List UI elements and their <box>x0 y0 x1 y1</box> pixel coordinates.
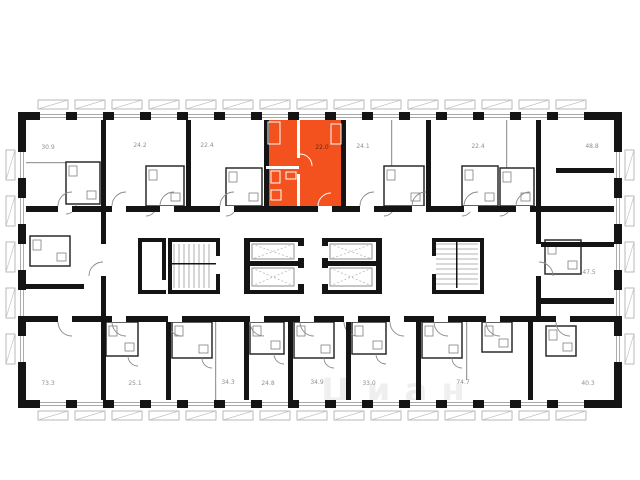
bathroom-box <box>30 236 70 266</box>
door-opening <box>300 316 314 322</box>
window-opening <box>558 400 584 408</box>
window-opening <box>336 400 362 408</box>
wall <box>298 258 304 268</box>
window-opening <box>484 400 510 408</box>
window-opening <box>225 112 251 120</box>
door-opening <box>220 206 234 212</box>
door-opening <box>112 206 126 212</box>
window-opening <box>18 198 26 224</box>
unit-area-label: 73.3 <box>41 380 55 387</box>
wall <box>101 321 106 400</box>
wall <box>322 238 382 242</box>
partition <box>26 162 66 163</box>
unit-area-label: 33.0 <box>362 380 376 387</box>
unit-area-label: 40.3 <box>581 380 595 387</box>
unit-area-label: 47.5 <box>582 269 596 276</box>
window-opening <box>18 244 26 270</box>
wall <box>541 242 614 247</box>
wall <box>216 238 220 256</box>
wall <box>536 298 614 304</box>
door-opening <box>556 316 570 322</box>
window-opening <box>114 112 140 120</box>
bathroom-box <box>384 166 424 206</box>
highlighted-unit-area-label: 22.0 <box>315 144 329 151</box>
window-opening <box>614 198 622 224</box>
window-opening <box>40 400 66 408</box>
unit-area-label: 24.8 <box>261 380 275 387</box>
wall <box>328 261 376 266</box>
door-opening <box>390 316 404 322</box>
unit-area-label: 30.9 <box>41 144 55 151</box>
window-opening <box>151 400 177 408</box>
wall <box>26 284 84 289</box>
door-opening <box>250 316 264 322</box>
wall <box>168 238 220 242</box>
window-opening <box>373 400 399 408</box>
wall <box>101 276 106 316</box>
window-opening <box>299 112 325 120</box>
stair-divider <box>456 242 458 288</box>
door-opening <box>160 206 174 212</box>
wall <box>250 261 298 266</box>
bathroom-box <box>226 168 262 206</box>
unit-area-label: 22.4 <box>200 142 214 149</box>
window-opening <box>262 112 288 120</box>
bathroom-box <box>66 162 100 204</box>
door-opening <box>516 206 530 212</box>
unit-area-label: 25.1 <box>128 380 142 387</box>
unit-area-label: 48.8 <box>585 143 599 150</box>
wall <box>244 290 304 294</box>
window-opening <box>447 400 473 408</box>
window-opening <box>114 400 140 408</box>
window-opening <box>521 400 547 408</box>
window-opening <box>262 400 288 408</box>
window-opening <box>77 112 103 120</box>
wall <box>536 276 541 316</box>
partition <box>506 120 507 168</box>
window-opening <box>18 152 26 178</box>
door-opening <box>344 316 358 322</box>
wall <box>416 321 421 400</box>
wall <box>528 321 533 400</box>
window-opening <box>225 400 251 408</box>
wall <box>341 120 346 206</box>
wall <box>432 238 484 242</box>
wall <box>536 212 541 244</box>
window-opening <box>188 400 214 408</box>
wall <box>322 238 328 246</box>
unit-area-label: 22.4 <box>471 143 485 150</box>
window-opening <box>373 112 399 120</box>
wall <box>322 290 382 294</box>
bathroom-box <box>146 166 184 206</box>
wall <box>432 290 484 294</box>
window-opening <box>614 290 622 316</box>
wall <box>298 284 304 294</box>
door-opening <box>412 206 426 212</box>
wall <box>556 168 614 173</box>
window-opening <box>40 112 66 120</box>
wall <box>244 238 304 242</box>
window-opening <box>521 112 547 120</box>
window-opening <box>188 112 214 120</box>
door-opening <box>168 316 182 322</box>
unit-area-label: 34.9 <box>310 379 324 386</box>
wall <box>168 290 220 294</box>
window-opening <box>151 112 177 120</box>
wall <box>536 120 541 206</box>
wall <box>426 120 431 206</box>
wall <box>322 258 328 268</box>
wall <box>322 284 328 294</box>
door-opening <box>360 206 374 212</box>
wall <box>298 238 304 246</box>
window-opening <box>558 112 584 120</box>
window-opening <box>614 336 622 362</box>
door-opening <box>58 206 72 212</box>
unit-area-label: 74.7 <box>456 379 470 386</box>
unit-partition <box>297 174 300 206</box>
bathroom-box <box>462 166 498 206</box>
door-opening <box>464 206 478 212</box>
unit-area-label: 34.3 <box>221 379 235 386</box>
door-opening <box>434 316 448 322</box>
wall <box>101 212 106 244</box>
wall <box>376 238 382 294</box>
bathroom-box <box>546 326 576 356</box>
wall <box>162 238 166 280</box>
window-opening <box>77 400 103 408</box>
wall <box>244 321 249 400</box>
unit-area-label: 24.1 <box>356 143 370 150</box>
window-opening <box>614 244 622 270</box>
wall <box>186 120 191 206</box>
window-opening <box>484 112 510 120</box>
wall <box>244 238 250 294</box>
wall <box>480 238 484 294</box>
wall <box>288 321 293 400</box>
wall <box>432 274 436 294</box>
door-opening <box>112 316 126 322</box>
partition <box>466 322 467 380</box>
wall <box>346 321 351 400</box>
window-opening <box>410 400 436 408</box>
wall <box>168 238 172 294</box>
unit-partition <box>297 120 300 158</box>
window-opening <box>299 400 325 408</box>
wall <box>166 321 171 400</box>
window-opening <box>447 112 473 120</box>
stair-divider <box>170 263 216 265</box>
window-opening <box>410 112 436 120</box>
window-opening <box>18 336 26 362</box>
partition <box>215 322 216 400</box>
unit-partition <box>266 166 299 169</box>
wall <box>138 290 166 294</box>
wall <box>138 238 142 294</box>
door-opening <box>318 206 332 212</box>
unit-area-label: 24.2 <box>133 142 147 149</box>
door-opening <box>486 316 500 322</box>
wall <box>432 238 436 256</box>
wall <box>101 120 106 206</box>
window-opening <box>336 112 362 120</box>
partition <box>391 120 392 166</box>
window-opening <box>18 290 26 316</box>
window-opening <box>614 152 622 178</box>
wall <box>138 238 166 242</box>
wall <box>216 274 220 294</box>
door-opening <box>58 316 72 322</box>
floor-plan: Циан 30.9 24.2 22.4 22.0 24.1 22.4 48.8 … <box>0 0 640 480</box>
